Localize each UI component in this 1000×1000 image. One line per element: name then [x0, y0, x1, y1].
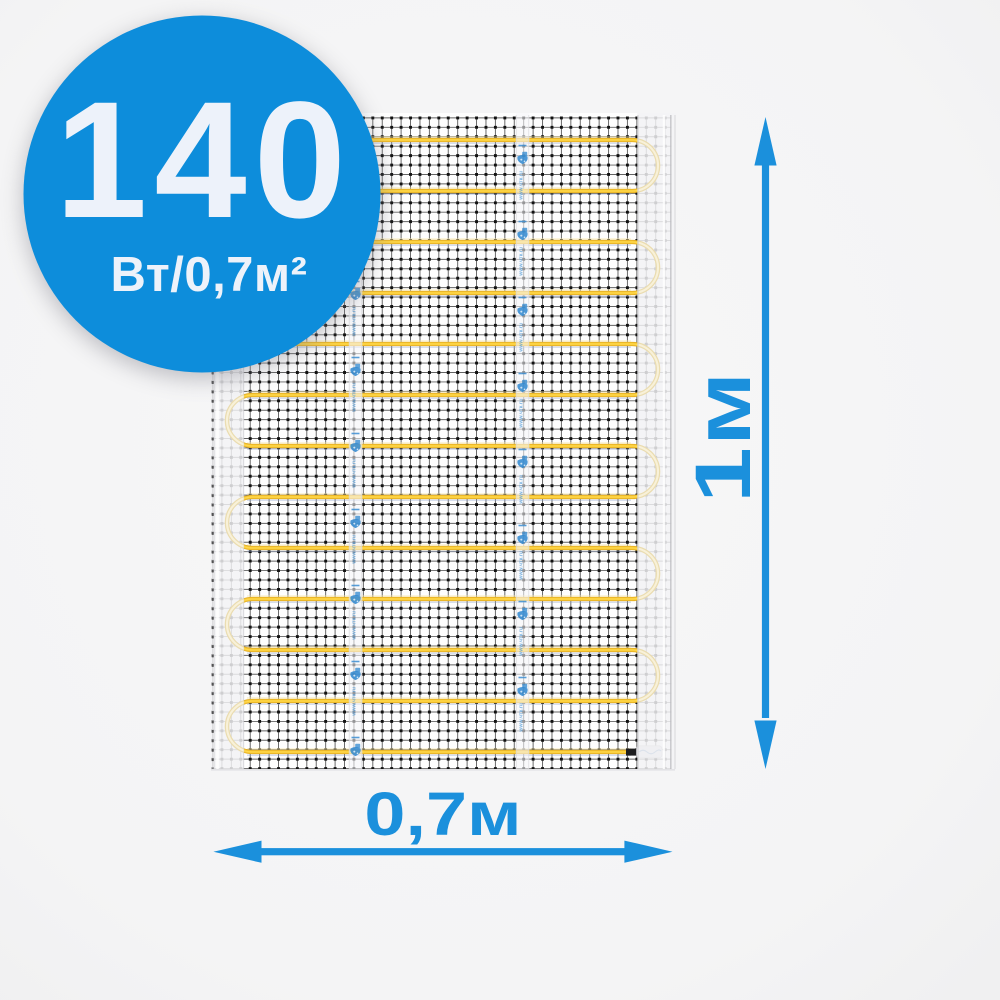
svg-text:www.чтк.ru: www.чтк.ru [352, 383, 358, 413]
svg-text:www.чтк.ru: www.чтк.ru [519, 475, 525, 505]
svg-text:www.чтк.ru: www.чтк.ru [519, 551, 525, 581]
svg-text:www.чтк.ru: www.чтк.ru [352, 307, 358, 337]
svg-text:140: 140 [55, 68, 353, 253]
svg-text:www.чтк.ru: www.чтк.ru [519, 627, 525, 657]
svg-text:www.чтк.ru: www.чтк.ru [519, 399, 525, 429]
svg-text:1м: 1м [679, 370, 767, 503]
svg-text:www.чтк.ru: www.чтк.ru [352, 459, 358, 489]
svg-text:Вт/0,7м²: Вт/0,7м² [110, 248, 307, 302]
svg-text:www.чтк.ru: www.чтк.ru [519, 171, 525, 201]
svg-text:www.чтк.ru: www.чтк.ru [519, 703, 525, 733]
svg-text:www.чтк.ru: www.чтк.ru [519, 247, 525, 277]
svg-text:www.чтк.ru: www.чтк.ru [352, 611, 358, 641]
svg-text:www.чтк.ru: www.чтк.ru [352, 687, 358, 717]
svg-text:www.чтк.ru: www.чтк.ru [352, 535, 358, 565]
svg-text:www.чтк.ru: www.чтк.ru [519, 323, 525, 353]
svg-text:0,7м: 0,7м [364, 781, 521, 849]
